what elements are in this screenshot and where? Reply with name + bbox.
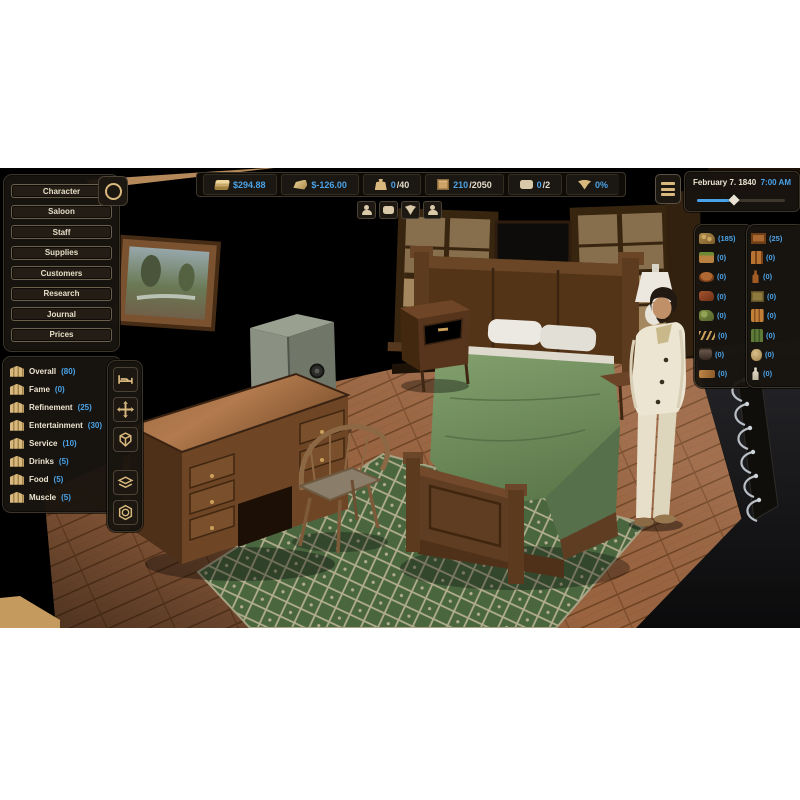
supply-count: (0) <box>717 311 726 320</box>
cash-indicator: $294.88 <box>203 174 277 195</box>
bag-indicator: 0/40 <box>363 174 421 195</box>
bandana-icon <box>578 180 591 190</box>
wine-bottles-icon <box>751 329 763 342</box>
supply-count: (0) <box>717 292 726 301</box>
demolish-tool-button[interactable] <box>113 427 138 452</box>
food-supply-panel: (185) (0) (0) (0) (0) (0) (0) (0) <box>694 224 754 388</box>
hay-sack-icon <box>699 233 715 244</box>
menu-customers-button[interactable]: Customers <box>11 266 112 280</box>
raw-meat-icon <box>699 291 714 301</box>
skewers-icon <box>699 331 715 340</box>
saloon-stat-icon <box>10 384 24 395</box>
saloon-stat-icon <box>10 402 24 413</box>
saloon-stat-icon <box>10 438 24 449</box>
staff-icon <box>428 205 438 216</box>
supply-count: (0) <box>766 253 775 262</box>
roast-meat-icon <box>699 272 714 282</box>
stat-row-refinement: Refinement(25) <box>10 400 114 415</box>
stat-row-entertainment: Entertainment(30) <box>10 418 114 433</box>
supply-row: (0) <box>699 308 749 324</box>
gold-bar-icon <box>293 180 307 190</box>
saloon-stat-icon <box>10 366 24 377</box>
messages-max: /2 <box>543 180 551 190</box>
liquor-box-icon <box>751 291 764 302</box>
build-tool-column <box>107 360 143 532</box>
bed-icon <box>117 371 134 388</box>
threat-value: 0% <box>595 180 608 190</box>
move-cross-icon <box>117 401 134 418</box>
cooking-pot-icon <box>699 350 712 360</box>
bandana-mini-button[interactable] <box>401 201 420 219</box>
menu-saloon-button[interactable]: Saloon <box>11 205 112 219</box>
rotate-icon <box>105 183 122 200</box>
game-date: February 7. 1840 <box>693 178 756 187</box>
crate-icon <box>437 179 449 190</box>
saloon-stat-icon <box>10 420 24 431</box>
stat-row-service: Service(10) <box>10 436 114 451</box>
sell-tool-button[interactable] <box>113 500 138 525</box>
menu-staff-button[interactable]: Staff <box>11 225 112 239</box>
storage-current: 210 <box>453 180 468 190</box>
bag-icon <box>375 179 387 190</box>
storage-max: /2050 <box>469 180 492 190</box>
supply-row: (0) <box>751 366 800 382</box>
storage-indicator: 210/2050 <box>425 174 503 195</box>
cube-icon <box>117 431 134 448</box>
cash-icon <box>214 180 230 190</box>
supply-row: (0) <box>699 288 749 304</box>
painting[interactable] <box>115 237 219 330</box>
cider-jug-icon <box>751 349 762 361</box>
saloon-stat-icon <box>10 456 24 467</box>
chat-mini-button[interactable] <box>379 201 398 219</box>
stat-row-overall: Overall(80) <box>10 364 114 379</box>
game-viewport: Character Saloon Staff Supplies Customer… <box>0 168 800 628</box>
beer-pack-icon <box>751 309 764 322</box>
letterbox-bottom <box>0 628 800 800</box>
bag-max: /40 <box>397 180 410 190</box>
time-slider-knob[interactable] <box>728 194 739 205</box>
letterbox-top <box>0 0 800 168</box>
bandana-icon <box>405 205 416 215</box>
move-tool-button[interactable] <box>113 397 138 422</box>
supply-count: (0) <box>767 292 776 301</box>
clock-panel: February 7. 1840 7:00 AM <box>684 171 800 212</box>
stat-row-food: Food(5) <box>10 472 114 487</box>
vegetables-icon <box>699 252 714 263</box>
menu-prices-button[interactable]: Prices <box>11 328 112 342</box>
speech-bubble-icon <box>520 180 533 189</box>
customers-icon <box>362 205 372 216</box>
supply-row: (0) <box>699 269 749 285</box>
supply-count: (0) <box>717 272 726 281</box>
cutting-board-icon <box>699 370 715 378</box>
supply-count: (0) <box>763 272 772 281</box>
customers-mini-button[interactable] <box>357 201 376 219</box>
layers-icon <box>117 474 134 491</box>
coin-hex-icon <box>117 504 134 521</box>
supply-row: (0) <box>751 308 800 324</box>
supply-count: (25) <box>769 234 782 243</box>
saloon-stats-panel: Overall(80) Fame(0) Refinement(25) Enter… <box>2 356 122 513</box>
supply-row: (0) <box>751 249 800 265</box>
furniture-tool-button[interactable] <box>113 367 138 392</box>
stat-row-drinks: Drinks(5) <box>10 454 114 469</box>
supply-count: (0) <box>765 350 774 359</box>
daily-profit-indicator: $-126.00 <box>281 174 358 195</box>
saloon-stat-icon <box>10 474 24 485</box>
supply-count: (0) <box>717 253 726 262</box>
daily-profit-value: $-126.00 <box>311 180 347 190</box>
moonshine-jug-icon <box>751 367 760 380</box>
supply-count: (0) <box>766 331 775 340</box>
mini-button-row <box>357 201 442 219</box>
supply-row: (25) <box>751 230 800 246</box>
whiskey-bottle-icon <box>751 270 760 283</box>
supply-count: (0) <box>718 369 727 378</box>
stat-row-fame: Fame(0) <box>10 382 114 397</box>
beer-bottles-icon <box>751 251 763 264</box>
supply-count: (0) <box>767 311 776 320</box>
supply-count: (0) <box>715 350 724 359</box>
game-time: 7:00 AM <box>761 178 791 187</box>
supply-row: (0) <box>699 366 749 382</box>
supply-row: (0) <box>699 249 749 265</box>
messages-current: 0 <box>537 180 542 190</box>
main-menu-button[interactable] <box>655 174 681 204</box>
staff-mini-button[interactable] <box>423 201 442 219</box>
supply-row: (0) <box>751 347 800 363</box>
bag-current: 0 <box>391 180 396 190</box>
supply-row: (0) <box>751 288 800 304</box>
stat-row-muscle: Muscle(5) <box>10 490 114 505</box>
supply-row: (0) <box>751 327 800 343</box>
hamburger-icon <box>661 182 675 185</box>
supply-row: (0) <box>699 347 749 363</box>
supply-count: (0) <box>718 331 727 340</box>
menu-research-button[interactable]: Research <box>11 287 112 301</box>
time-slider[interactable] <box>697 199 785 202</box>
drinks-supply-panel: (25) (0) (0) (0) (0) (0) (0) (0) <box>746 224 800 388</box>
floors-tool-button[interactable] <box>113 470 138 495</box>
bed[interactable] <box>400 246 644 590</box>
menu-supplies-button[interactable]: Supplies <box>11 246 112 260</box>
supply-row: (0) <box>751 269 800 285</box>
supply-count: (185) <box>718 234 736 243</box>
chat-icon <box>383 206 394 214</box>
threat-indicator: 0% <box>566 174 619 195</box>
supply-row: (0) <box>699 327 749 343</box>
resource-bar: $294.88 $-126.00 0/40 210/2050 0/2 0% <box>196 172 626 197</box>
rotate-camera-button[interactable] <box>98 176 128 206</box>
cash-value: $294.88 <box>233 180 266 190</box>
cabbage-icon <box>699 310 714 321</box>
supply-row: (185) <box>699 230 749 246</box>
saloon-stat-icon <box>10 492 24 503</box>
supply-count: (0) <box>763 369 772 378</box>
messages-indicator: 0/2 <box>508 174 562 195</box>
menu-journal-button[interactable]: Journal <box>11 307 112 321</box>
beer-crate-icon <box>751 233 766 244</box>
menu-character-button[interactable]: Character <box>11 184 112 198</box>
